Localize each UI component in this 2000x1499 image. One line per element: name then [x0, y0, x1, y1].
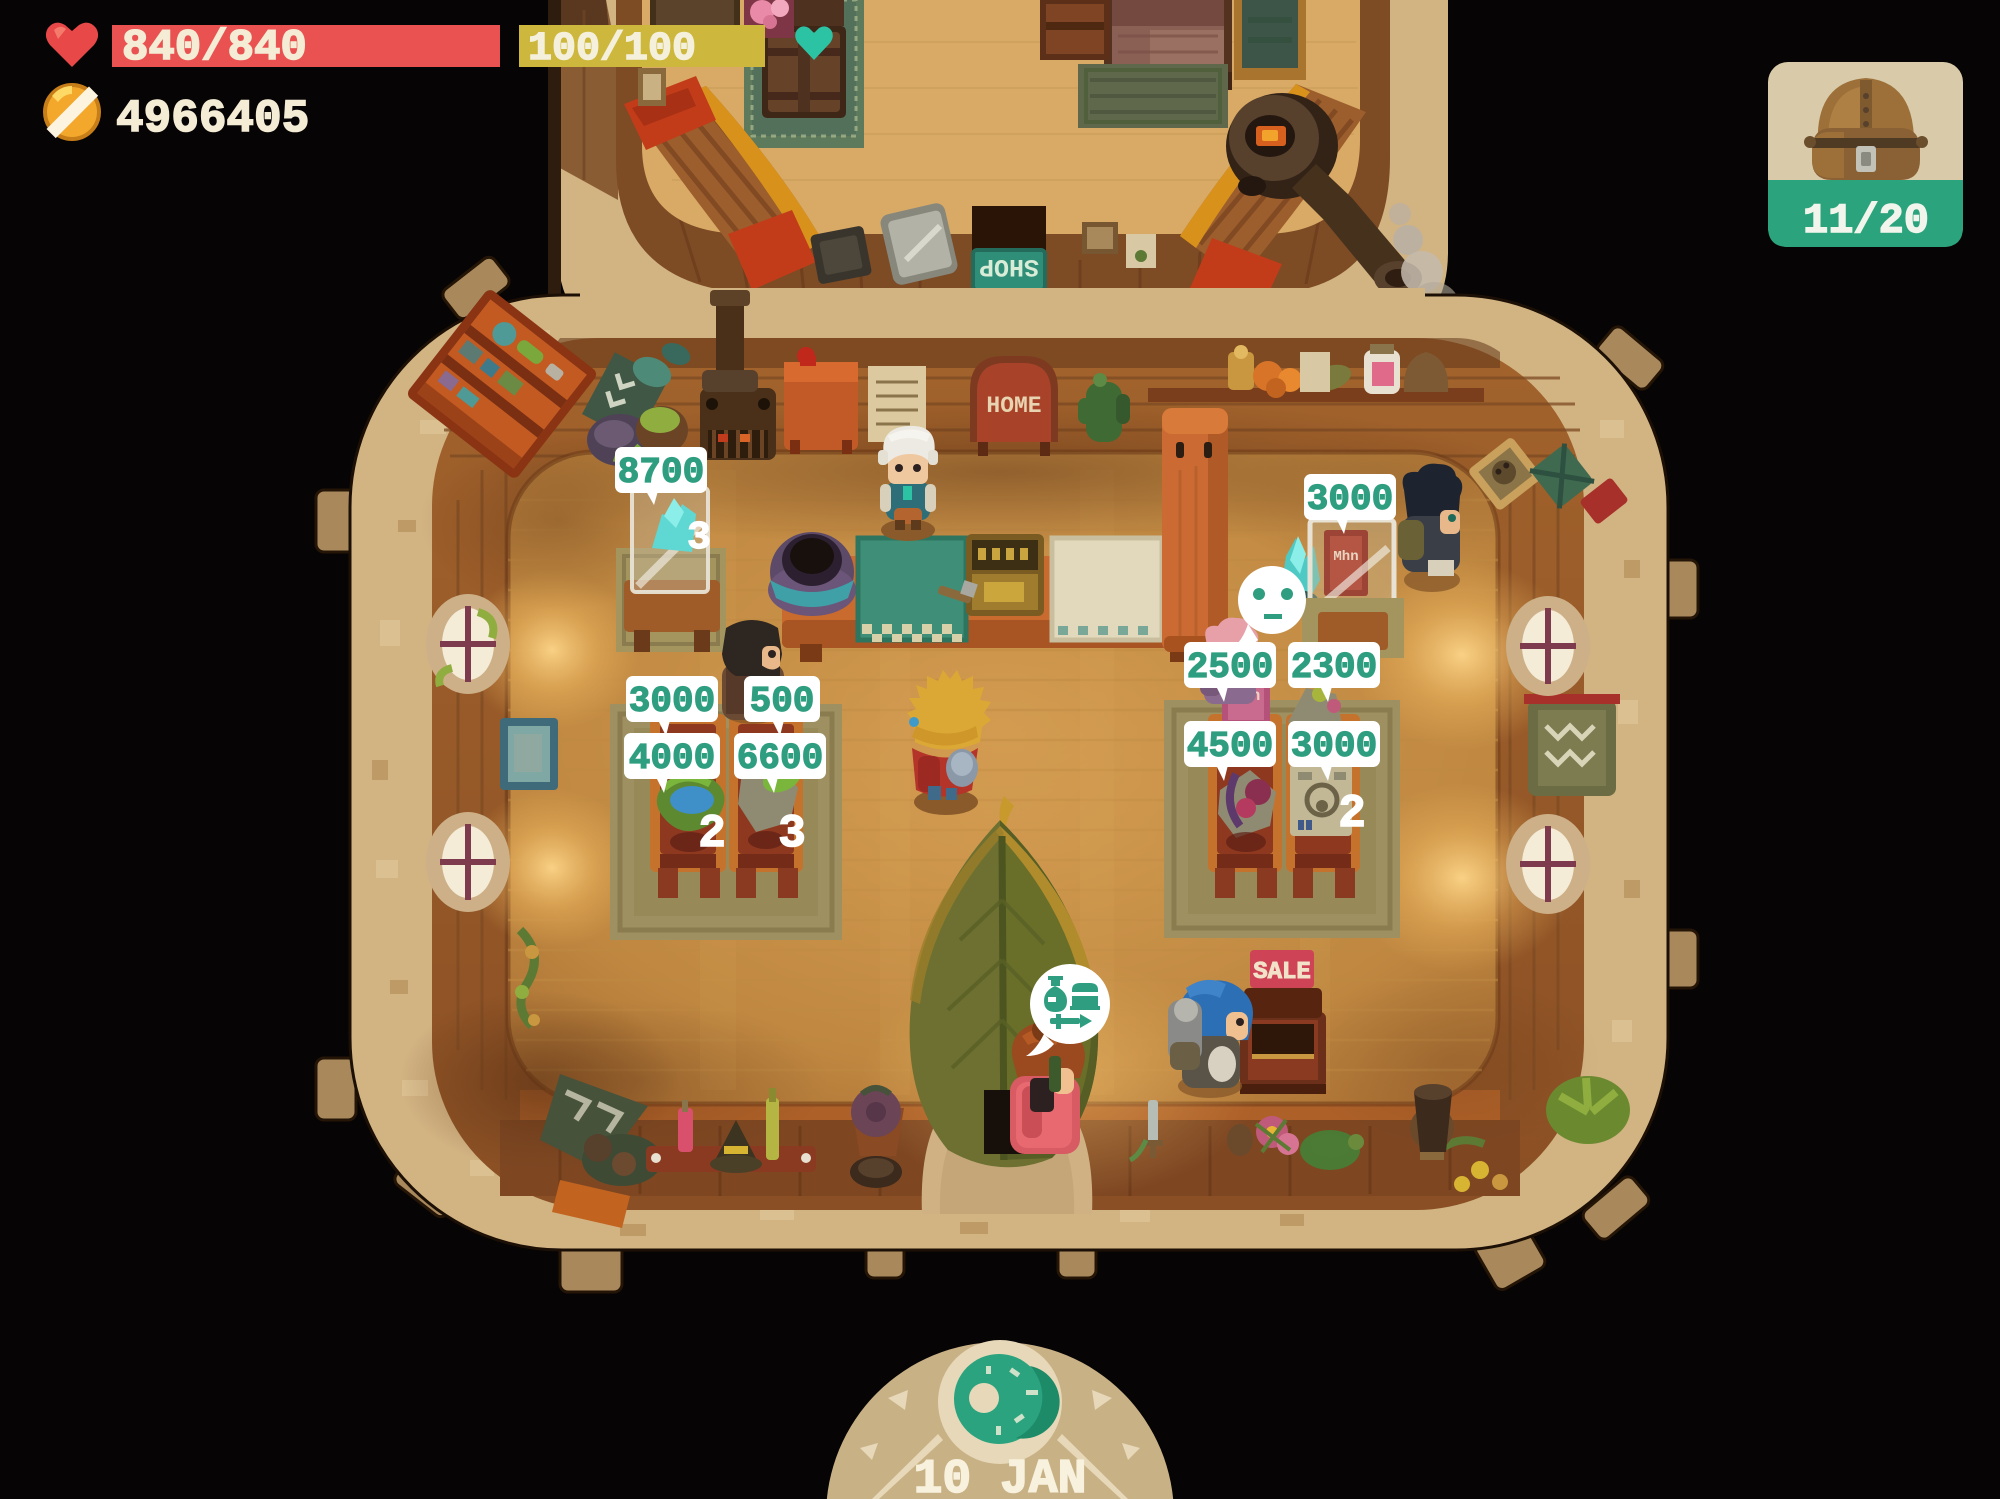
svg-text:4966405: 4966405 — [116, 93, 309, 145]
svg-text:2500: 2500 — [1187, 647, 1273, 688]
svg-text:2: 2 — [698, 808, 726, 860]
svg-text:SALE: SALE — [1253, 959, 1311, 986]
svg-text:3000: 3000 — [1307, 479, 1393, 520]
svg-text:500: 500 — [750, 681, 815, 722]
svg-text:8700: 8700 — [618, 452, 704, 493]
svg-text:6600: 6600 — [737, 738, 823, 779]
svg-text:3000: 3000 — [629, 681, 715, 722]
svg-text:10 JAN: 10 JAN — [914, 1453, 1087, 1499]
svg-text:2: 2 — [1338, 788, 1366, 840]
svg-text:SHOP: SHOP — [979, 252, 1039, 281]
svg-text:Mhn: Mhn — [1333, 549, 1358, 565]
svg-text:HOME: HOME — [986, 393, 1041, 419]
svg-text:3: 3 — [687, 516, 711, 561]
svg-text:4500: 4500 — [1187, 726, 1273, 767]
svg-text:2300: 2300 — [1291, 647, 1377, 688]
svg-text:3000: 3000 — [1291, 726, 1377, 767]
svg-text:3: 3 — [778, 808, 806, 860]
svg-text:4000: 4000 — [629, 738, 715, 779]
svg-text:11/20: 11/20 — [1803, 197, 1929, 245]
svg-text:100/100: 100/100 — [528, 27, 696, 72]
svg-text:840/840: 840/840 — [122, 23, 307, 73]
